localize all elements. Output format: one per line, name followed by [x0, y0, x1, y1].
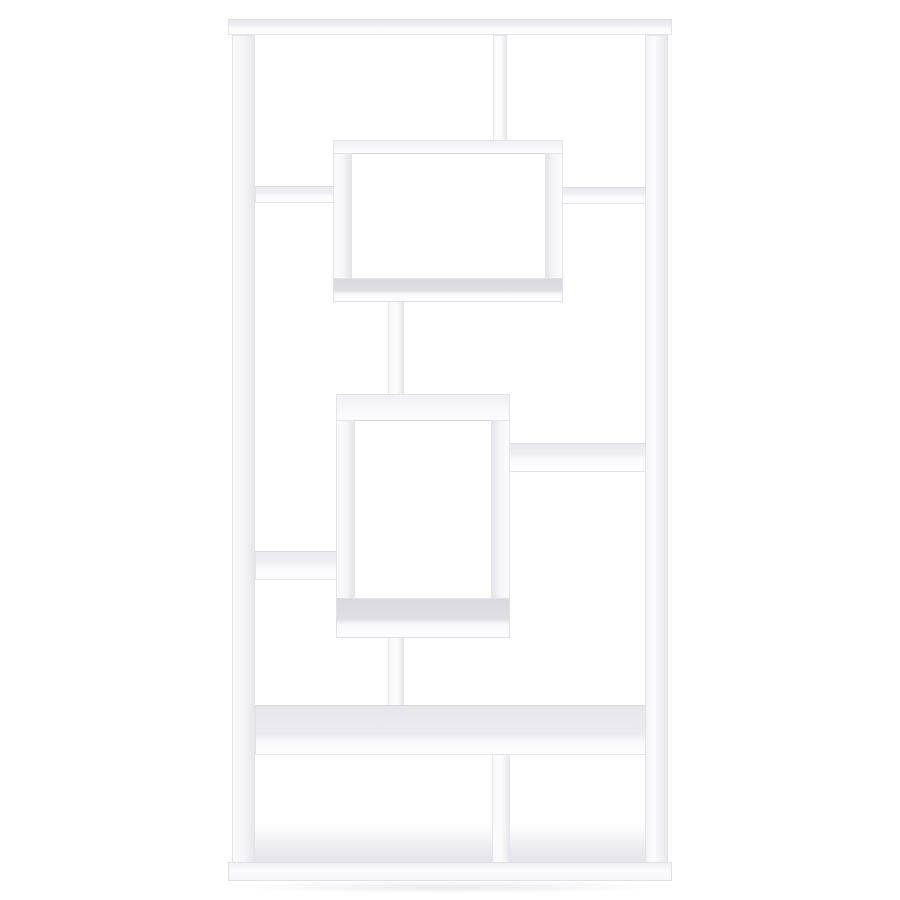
product-image: [0, 0, 900, 900]
top-box-left: [333, 153, 352, 283]
middle-box-right: [491, 420, 510, 608]
middle-right-shelf: [509, 443, 646, 472]
middle-box-bottom: [336, 598, 510, 638]
bottom-floor-left: [255, 824, 492, 862]
right-side-panel: [645, 35, 668, 863]
wide-lower-shelf: [255, 705, 646, 755]
top-section-divider: [493, 35, 507, 142]
top-box-top: [333, 140, 563, 154]
top-board: [228, 19, 672, 35]
lower-center-post: [388, 636, 404, 708]
bottom-floor-right: [510, 824, 645, 862]
top-box-bottom: [333, 278, 563, 302]
middle-box-top: [336, 394, 510, 421]
upper-left-shelf: [255, 186, 334, 203]
bottom-divider: [492, 754, 510, 863]
left-side-panel: [232, 35, 255, 863]
ground-shadow: [236, 880, 664, 894]
middle-box-left: [336, 420, 355, 608]
bottom-board: [228, 862, 672, 881]
upper-right-shelf: [562, 187, 646, 204]
lower-left-shelf: [255, 551, 341, 580]
upper-center-post: [388, 300, 404, 398]
top-box-right: [545, 153, 563, 283]
